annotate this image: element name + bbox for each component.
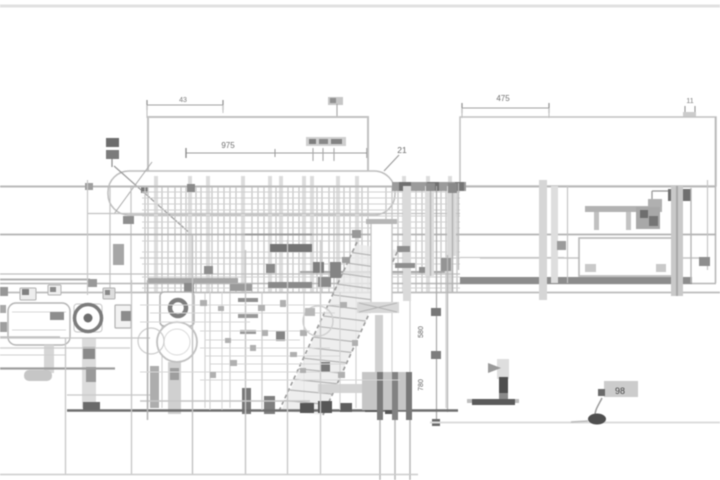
svg-text:780: 780 (418, 379, 425, 391)
svg-text:21: 21 (397, 145, 407, 155)
svg-text:43: 43 (179, 97, 187, 104)
svg-text:11: 11 (686, 98, 693, 105)
svg-text:975: 975 (221, 141, 235, 150)
svg-text:475: 475 (496, 94, 510, 103)
svg-text:98: 98 (615, 386, 625, 396)
svg-text:580: 580 (418, 326, 425, 338)
